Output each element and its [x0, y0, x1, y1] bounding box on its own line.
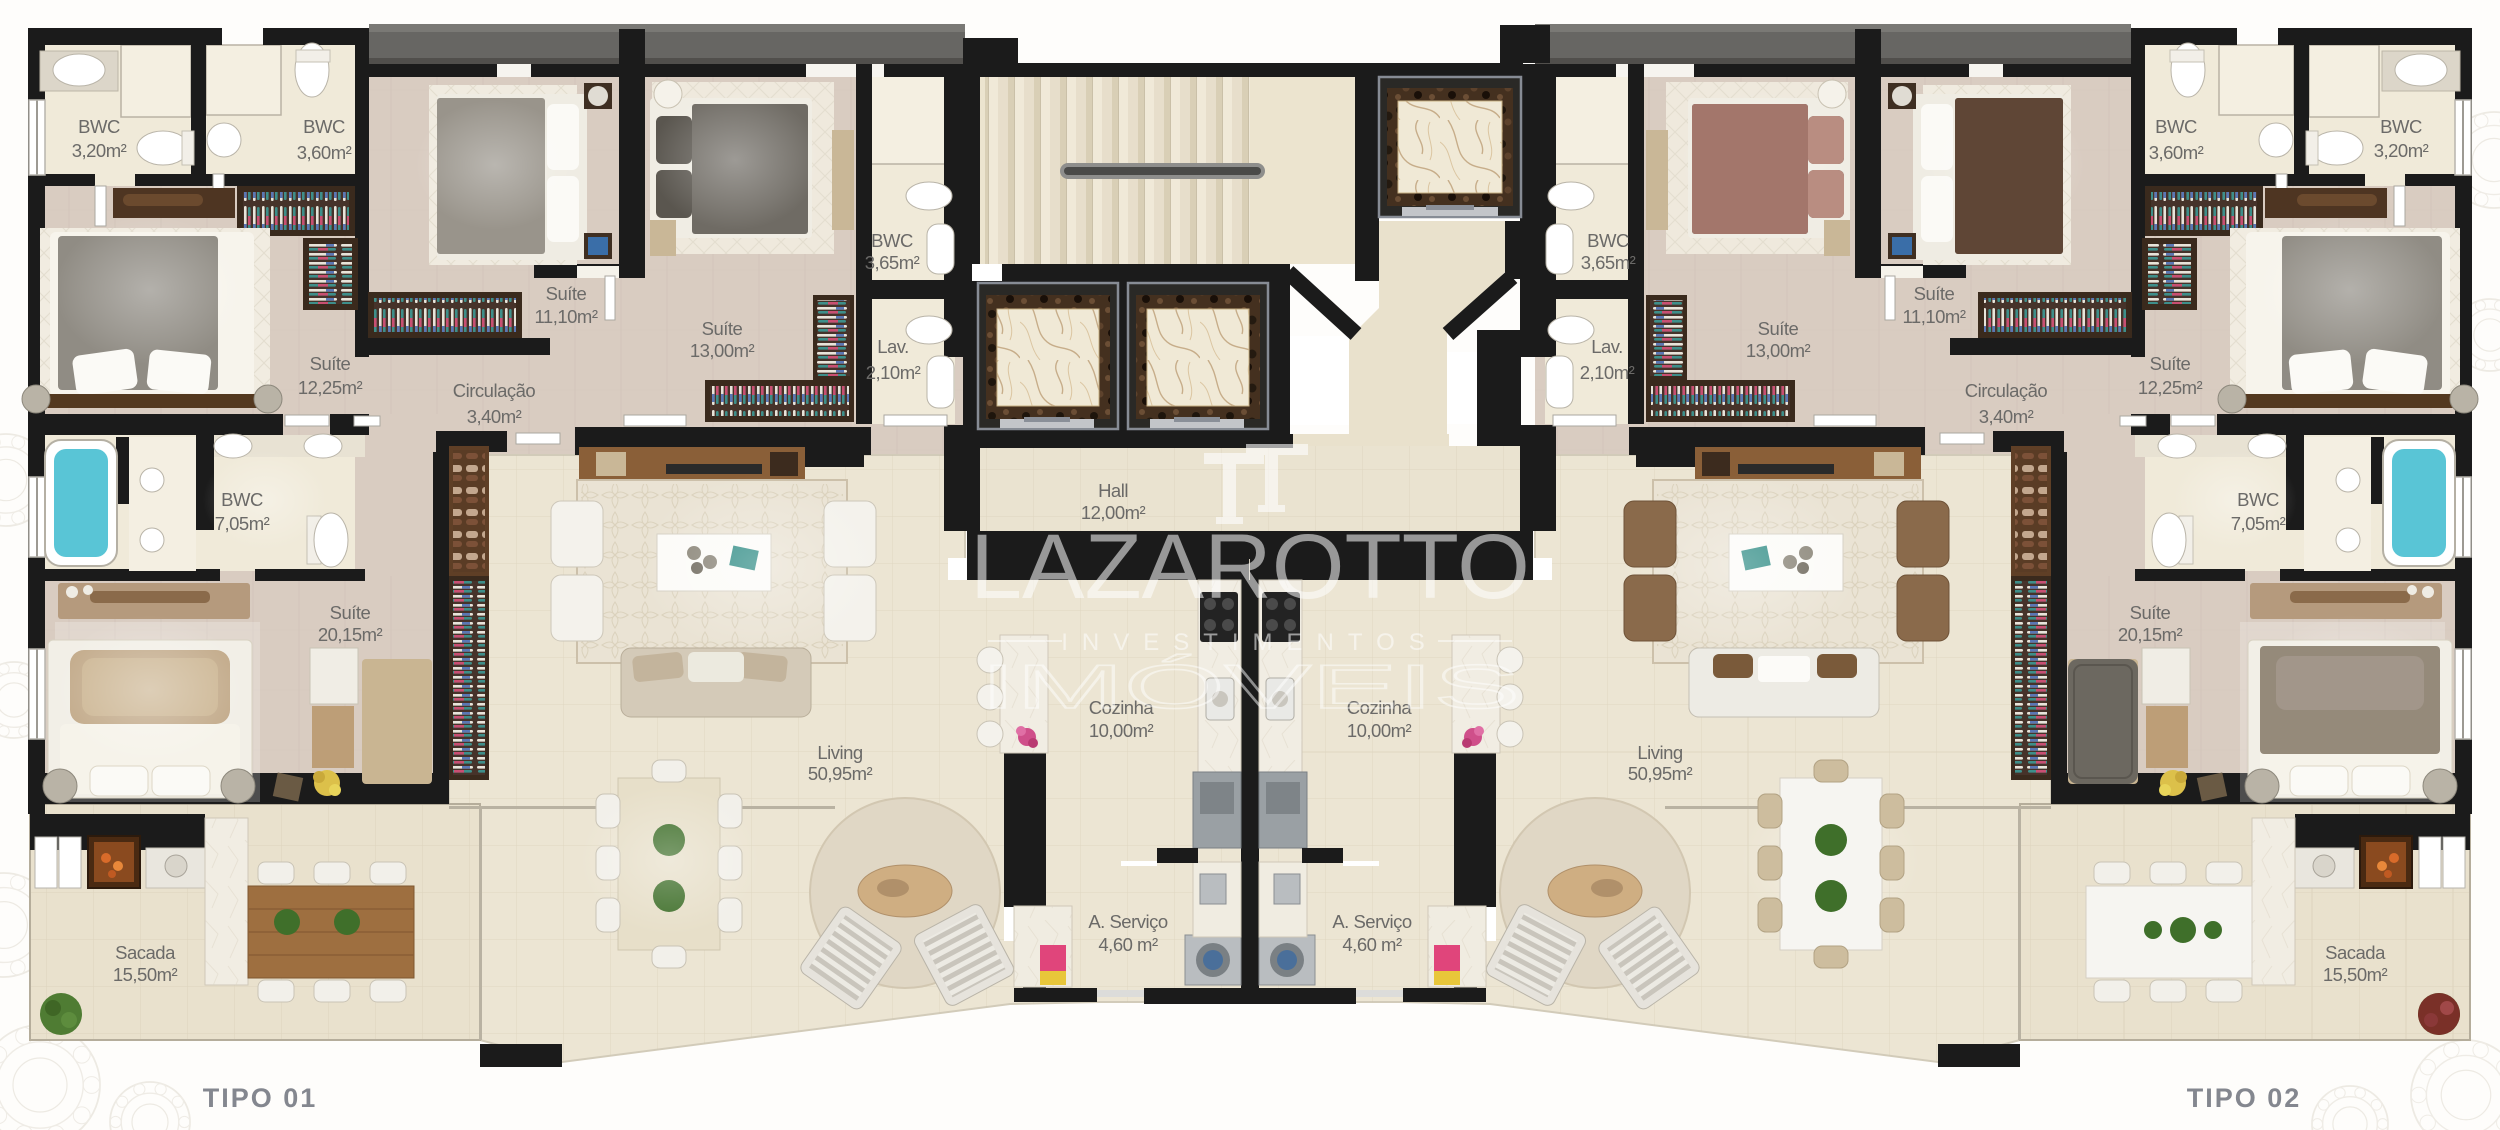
svg-text:3,40m²: 3,40m²	[1979, 406, 2034, 427]
svg-text:Suíte: Suíte	[310, 353, 351, 374]
svg-text:50,95m²: 50,95m²	[808, 763, 873, 784]
svg-text:7,05m²: 7,05m²	[215, 513, 270, 534]
svg-text:Suíte: Suíte	[1914, 283, 1955, 304]
svg-text:10,00m²: 10,00m²	[1347, 720, 1412, 741]
svg-text:2,10m²: 2,10m²	[1580, 362, 1635, 383]
svg-text:Hall: Hall	[1098, 480, 1128, 501]
svg-text:13,00m²: 13,00m²	[1746, 340, 1811, 361]
svg-text:LAZAROTTO: LAZAROTTO	[970, 516, 1530, 618]
svg-text:12,25m²: 12,25m²	[2138, 377, 2203, 398]
svg-text:11,10m²: 11,10m²	[1903, 306, 1966, 327]
svg-text:3,60m²: 3,60m²	[297, 142, 352, 163]
svg-text:BWC: BWC	[2380, 116, 2422, 137]
svg-text:3,65m²: 3,65m²	[1581, 252, 1636, 273]
svg-text:BWC: BWC	[221, 489, 263, 510]
svg-text:Circulação: Circulação	[1965, 380, 2048, 401]
svg-text:20,15m²: 20,15m²	[2118, 624, 2183, 645]
svg-text:3,40m²: 3,40m²	[467, 406, 522, 427]
svg-text:Lav.: Lav.	[877, 336, 909, 357]
svg-text:Suíte: Suíte	[2130, 602, 2171, 623]
svg-text:BWC: BWC	[871, 230, 913, 251]
svg-text:BWC: BWC	[1587, 230, 1629, 251]
svg-text:BWC: BWC	[303, 116, 345, 137]
svg-text:4,60 m²: 4,60 m²	[1342, 934, 1402, 955]
svg-text:A. Serviço: A. Serviço	[1332, 911, 1412, 932]
svg-text:10,00m²: 10,00m²	[1089, 720, 1154, 741]
svg-text:15,50m²: 15,50m²	[2323, 964, 2388, 985]
svg-text:3,20m²: 3,20m²	[2374, 140, 2429, 161]
svg-text:TIPO 02: TIPO 02	[2187, 1083, 2302, 1113]
svg-text:20,15m²: 20,15m²	[318, 624, 383, 645]
svg-text:TIPO 01: TIPO 01	[203, 1083, 318, 1113]
svg-text:3,20m²: 3,20m²	[72, 140, 127, 161]
svg-text:13,00m²: 13,00m²	[690, 340, 755, 361]
svg-text:4,60 m²: 4,60 m²	[1098, 934, 1158, 955]
svg-text:IMÓVEIS: IMÓVEIS	[980, 653, 1520, 722]
svg-text:Suíte: Suíte	[702, 318, 743, 339]
svg-text:Suíte: Suíte	[2150, 353, 2191, 374]
svg-text:Sacada: Sacada	[115, 942, 176, 963]
svg-text:12,25m²: 12,25m²	[298, 377, 363, 398]
svg-text:3,60m²: 3,60m²	[2149, 142, 2204, 163]
svg-text:BWC: BWC	[2237, 489, 2279, 510]
svg-text:2,10m²: 2,10m²	[866, 362, 921, 383]
svg-text:Living: Living	[1637, 742, 1683, 763]
svg-text:Living: Living	[817, 742, 863, 763]
svg-text:Suíte: Suíte	[1758, 318, 1799, 339]
svg-text:INVESTIMENTOS: INVESTIMENTOS	[1061, 629, 1439, 656]
svg-text:3,65m²: 3,65m²	[865, 252, 920, 273]
svg-text:Suíte: Suíte	[546, 283, 587, 304]
svg-text:A. Serviço: A. Serviço	[1088, 911, 1168, 932]
svg-text:15,50m²: 15,50m²	[113, 964, 178, 985]
svg-text:50,95m²: 50,95m²	[1628, 763, 1693, 784]
svg-text:Circulação: Circulação	[453, 380, 536, 401]
svg-text:Suíte: Suíte	[330, 602, 371, 623]
svg-text:BWC: BWC	[78, 116, 120, 137]
svg-text:BWC: BWC	[2155, 116, 2197, 137]
svg-text:Sacada: Sacada	[2325, 942, 2386, 963]
svg-text:7,05m²: 7,05m²	[2231, 513, 2286, 534]
svg-text:Lav.: Lav.	[1591, 336, 1623, 357]
svg-text:11,10m²: 11,10m²	[535, 306, 598, 327]
